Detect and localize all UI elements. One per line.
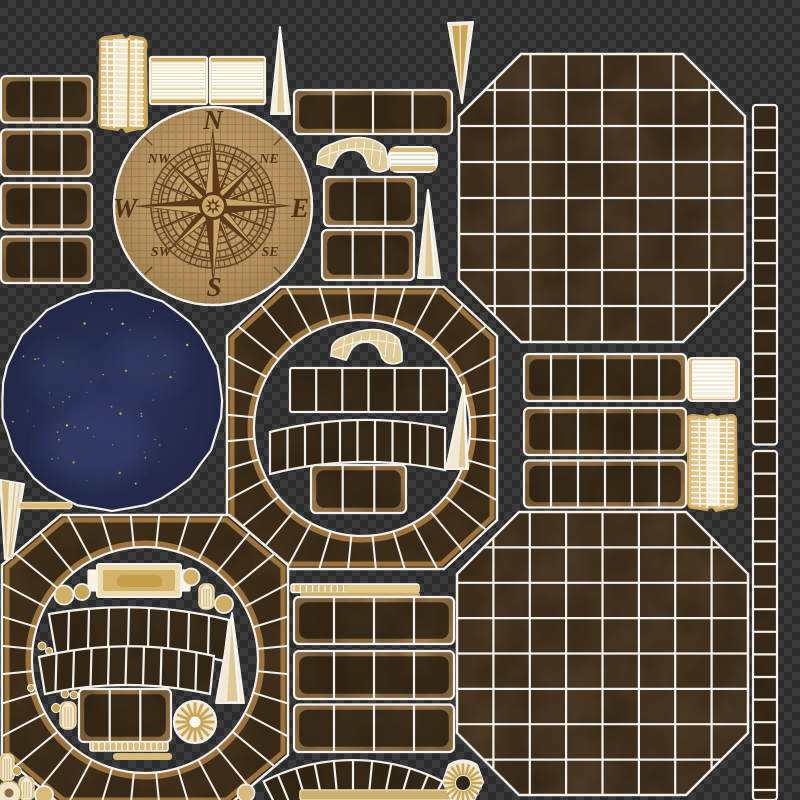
svg-text:SE: SE (261, 245, 278, 260)
svg-text:NW: NW (147, 152, 172, 167)
svg-text:SW: SW (151, 245, 173, 260)
svg-text:N: N (202, 105, 224, 135)
svg-text:W: W (113, 193, 139, 223)
svg-text:S: S (206, 272, 221, 302)
svg-text:E: E (290, 193, 309, 223)
svg-text:NE: NE (258, 152, 278, 167)
